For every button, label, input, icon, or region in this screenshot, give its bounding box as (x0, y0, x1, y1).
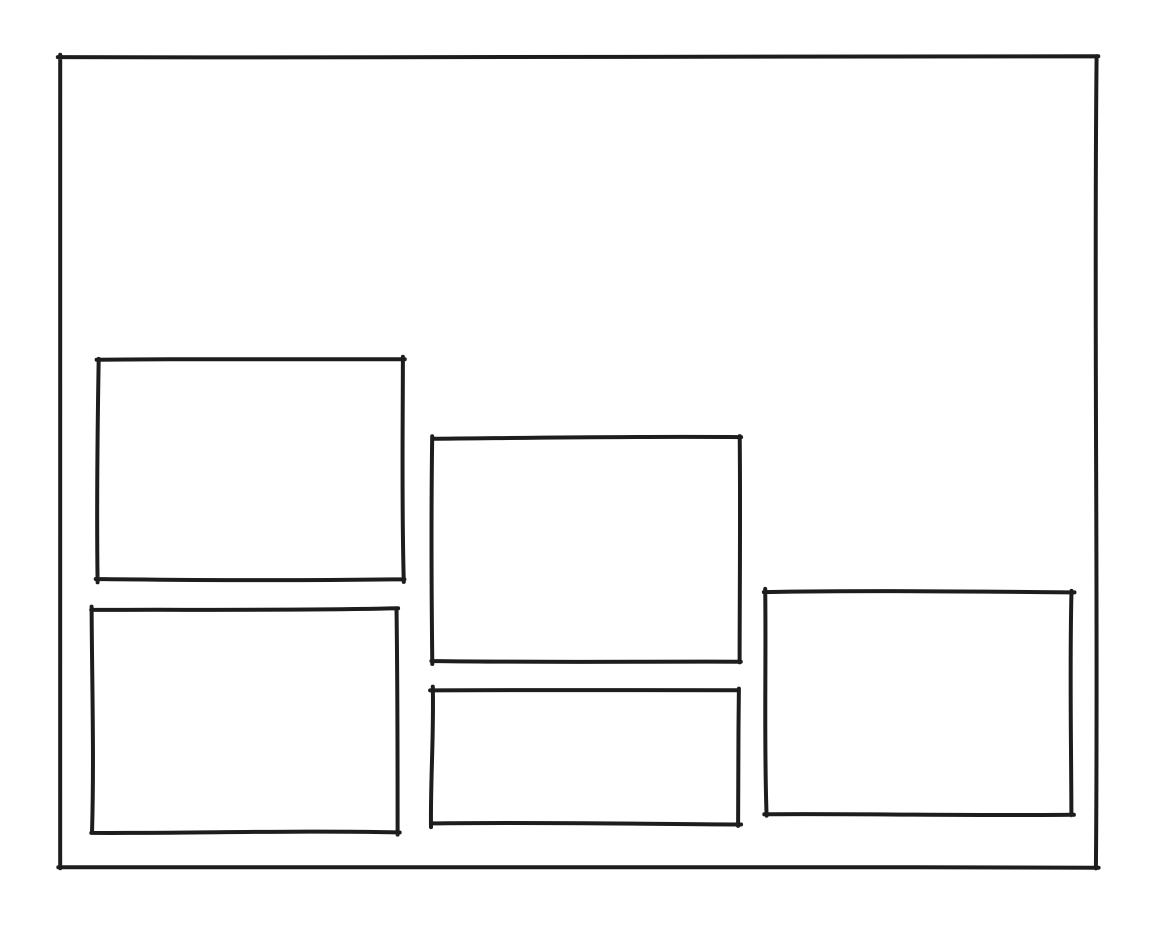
outer-frame (58, 55, 1099, 869)
panel-top-left (96, 357, 405, 583)
sketch-page (0, 0, 1150, 942)
panel-bottom-left (91, 607, 400, 835)
panel-right (764, 589, 1075, 816)
panel-middle-center (431, 436, 741, 664)
wireframe-sketch (0, 0, 1150, 942)
panel-bottom-center (430, 687, 741, 828)
